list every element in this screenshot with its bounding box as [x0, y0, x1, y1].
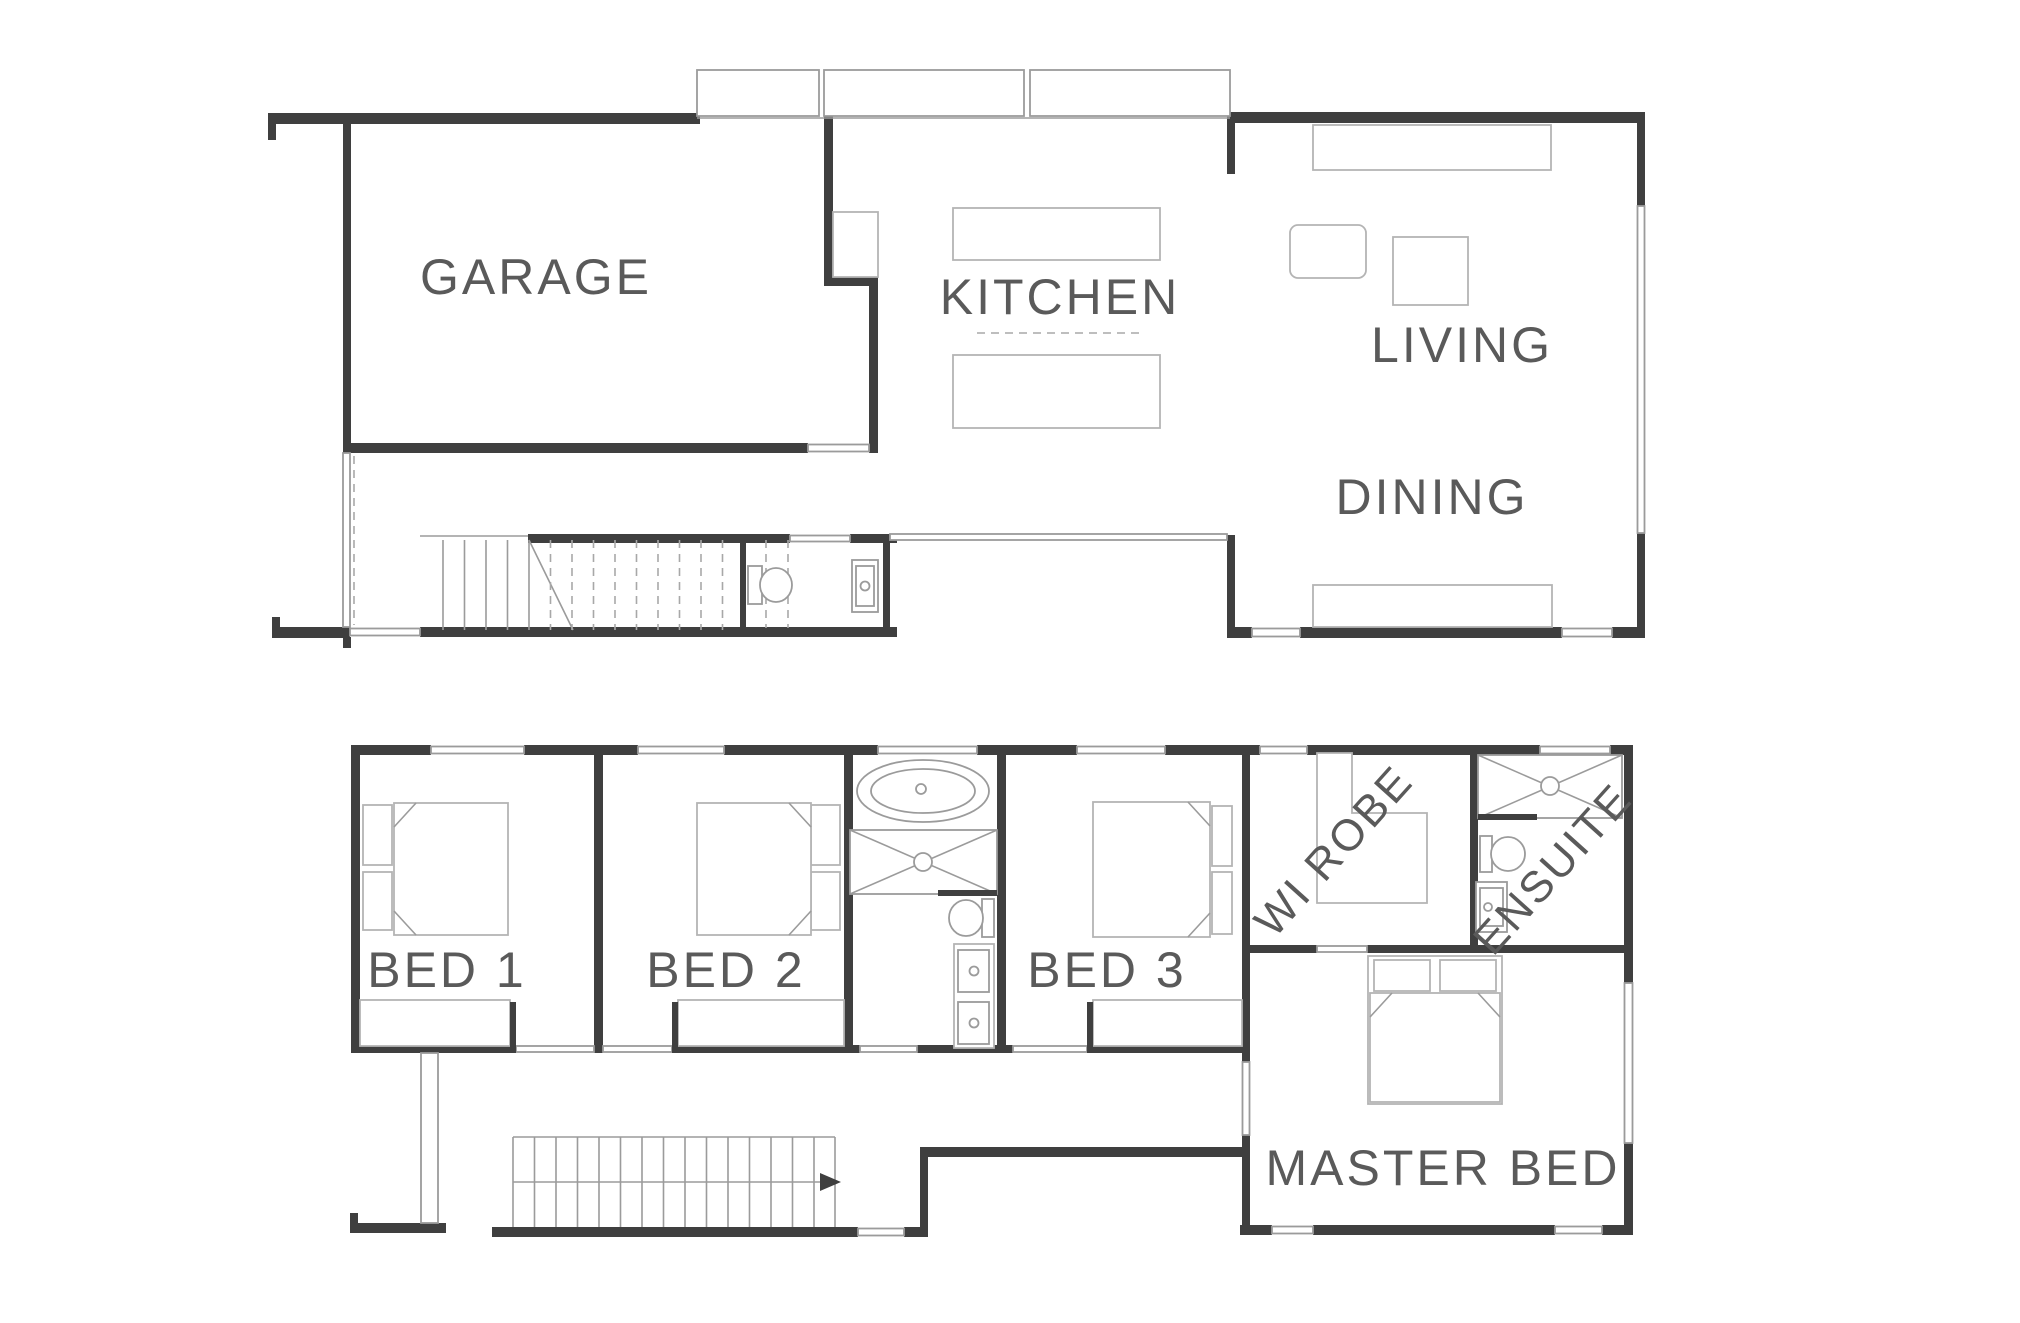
bed1-wardrobe-icon: [360, 1000, 510, 1046]
ensuite-window: [1540, 747, 1610, 754]
stair-treads-hidden: [551, 540, 723, 630]
master-pillow-icon: [1374, 960, 1430, 991]
bed2-mattress-icon: [697, 803, 811, 935]
basin-tap-icon: [861, 582, 870, 591]
bed1-label: BED 1: [367, 942, 527, 998]
bed2-furniture: [672, 803, 844, 1053]
upper-staircase: [513, 1137, 841, 1227]
toilet-bowl-icon: [760, 568, 792, 602]
shower-screen-wall: [938, 890, 997, 896]
stair-void-side-wall: [421, 1053, 438, 1223]
ground-floor: GARAGE KITCHEN LIVING DINING: [268, 70, 1645, 648]
bed3-mattress-icon: [1093, 802, 1210, 937]
wirobe-window: [1260, 747, 1307, 754]
master-bed-label: MASTER BED: [1265, 1140, 1620, 1196]
ground-wc: [748, 560, 878, 612]
dining-window-left: [1252, 629, 1300, 637]
bed1-window: [431, 747, 524, 754]
front-door-opening: [350, 629, 420, 636]
bed1-door-opening: [516, 1046, 594, 1052]
bed2-window: [638, 747, 724, 754]
kitchen-island-icon: [953, 208, 1160, 260]
master-pillow-icon: [1440, 960, 1496, 991]
window-bay-2: [824, 70, 1024, 116]
window-bay-1: [697, 70, 819, 116]
bed1-furniture: [360, 803, 516, 1053]
bed2-pillow-icon: [811, 805, 840, 865]
bed3-label: BED 3: [1027, 942, 1187, 998]
bed2-label: BED 2: [646, 942, 806, 998]
stair-direction-arrow-icon: [820, 1173, 841, 1191]
upper-floor: BED 1 BED 2 BED 3 WI ROBE ENSUITE MASTER…: [350, 745, 1642, 1237]
bathroom-fixtures: [850, 760, 997, 1048]
ground-staircase: [420, 536, 788, 630]
dining-label: DINING: [1336, 469, 1529, 525]
pantry-icon: [833, 212, 878, 277]
master-bottom-window-1: [1272, 1227, 1313, 1234]
living-dining-furniture: [1290, 125, 1552, 627]
wc-door-opening: [790, 536, 850, 542]
side-table-icon: [1290, 225, 1366, 278]
bed2-pillow-icon: [811, 872, 840, 930]
bed3-pillow-icon: [1212, 872, 1232, 934]
kitchen-bench-icon: [953, 355, 1160, 428]
master-bottom-window-2: [1555, 1227, 1602, 1234]
bed3-wardrobe-icon: [1093, 1000, 1242, 1046]
bed1-pillow-icon: [363, 805, 392, 865]
entry-side-wall: [343, 453, 350, 627]
window-bay-3: [1030, 70, 1230, 116]
bed3-window: [1077, 747, 1165, 754]
shower-drain-icon: [914, 853, 932, 871]
coffee-table-icon: [1393, 237, 1468, 305]
ensuite-toilet-bowl-icon: [1491, 837, 1525, 871]
bed1-mattress-icon: [394, 803, 508, 935]
bed3-furniture: [1087, 802, 1242, 1053]
bath-toilet-bowl-icon: [949, 900, 983, 936]
stair-treads-solid: [443, 540, 529, 630]
bed1-pillow-icon: [363, 872, 392, 930]
tv-unit-icon: [1313, 125, 1551, 170]
bed2-door-opening: [603, 1046, 672, 1052]
master-door-opening: [1243, 1062, 1250, 1135]
bed3-door-opening: [1013, 1046, 1087, 1052]
master-furniture: [1368, 956, 1502, 1104]
living-window: [1638, 206, 1645, 533]
bed2-wardrobe-icon: [678, 1000, 844, 1046]
sideboard-icon: [1313, 585, 1552, 627]
garage-label: GARAGE: [420, 249, 652, 305]
ensuite-shower-screen-wall: [1478, 814, 1537, 820]
kitchen-label: KITCHEN: [940, 269, 1180, 325]
meals-nook-window: [890, 534, 1227, 540]
bed3-pillow-icon: [1212, 806, 1232, 866]
entry-kitchen-opening: [808, 445, 869, 452]
bathtub-drain-icon: [916, 784, 926, 794]
floor-plan-svg: GARAGE KITCHEN LIVING DINING: [0, 0, 2020, 1323]
living-label: LIVING: [1371, 317, 1553, 373]
stair-void-opening: [858, 1229, 904, 1236]
ensuite-shower-drain-icon: [1541, 777, 1559, 795]
floor-plan-page: GARAGE KITCHEN LIVING DINING: [0, 0, 2020, 1323]
master-side-window: [1625, 983, 1633, 1143]
dining-window-right: [1562, 629, 1612, 637]
bath-door-opening: [860, 1046, 917, 1052]
master-mattress-icon: [1370, 993, 1500, 1102]
wirobe-door-opening: [1317, 946, 1367, 952]
bath-window: [878, 747, 977, 754]
